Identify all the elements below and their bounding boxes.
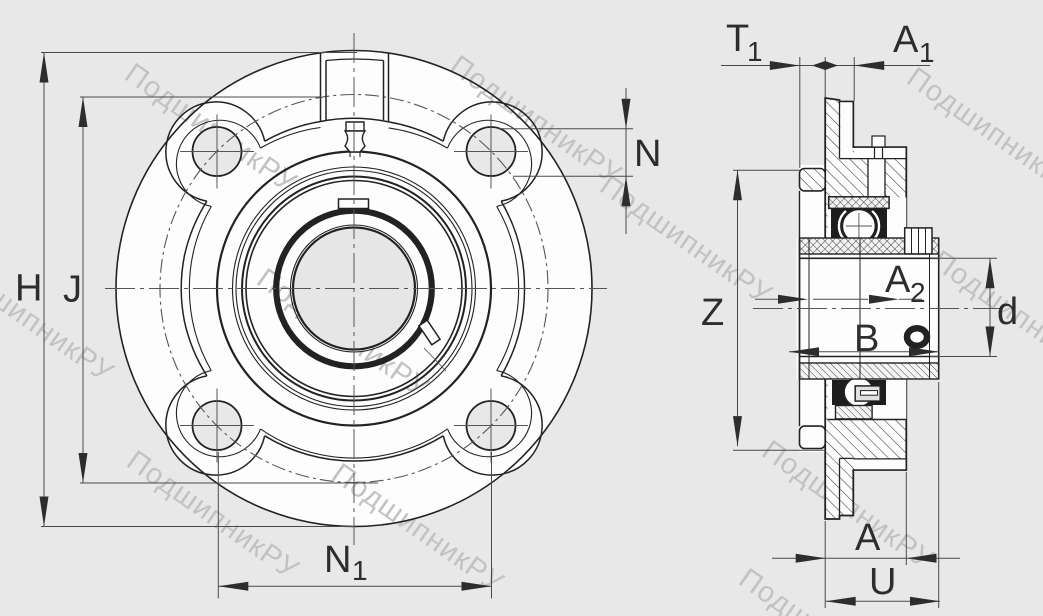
svg-text:1: 1 bbox=[747, 36, 763, 67]
svg-text:A: A bbox=[885, 259, 911, 301]
svg-text:Z: Z bbox=[701, 292, 724, 334]
svg-text:A: A bbox=[893, 19, 919, 61]
svg-text:H: H bbox=[15, 268, 42, 310]
svg-text:B: B bbox=[854, 318, 879, 360]
svg-text:T: T bbox=[726, 18, 749, 60]
svg-text:d: d bbox=[997, 291, 1018, 333]
svg-text:U: U bbox=[869, 561, 896, 603]
svg-text:J: J bbox=[63, 269, 82, 311]
svg-text:1: 1 bbox=[919, 37, 935, 68]
svg-text:2: 2 bbox=[910, 277, 926, 308]
svg-text:N: N bbox=[634, 133, 661, 175]
svg-text:A: A bbox=[855, 517, 881, 559]
svg-text:1: 1 bbox=[352, 555, 368, 586]
svg-text:N: N bbox=[324, 539, 351, 581]
